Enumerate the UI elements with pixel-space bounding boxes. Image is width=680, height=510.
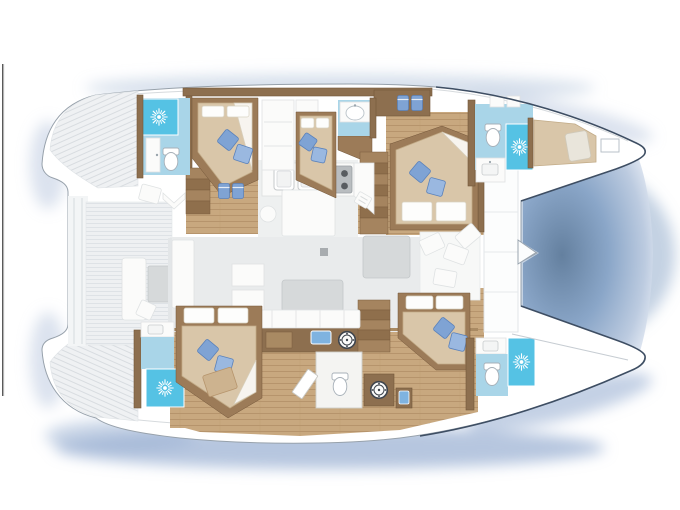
wall — [370, 98, 376, 138]
salon-cabinet-1 — [232, 264, 264, 286]
catamaran-floor-plan: Catamaran yacht interior floor plan, top… — [0, 0, 680, 510]
washing-machine-icon — [339, 332, 356, 349]
anchor-locker — [601, 139, 619, 152]
washing-machine-icon — [371, 382, 388, 399]
blue-towel-icon — [219, 184, 230, 199]
floor-plan-canvas: Catamaran yacht interior floor plan, top… — [0, 0, 680, 510]
bed-pillow — [301, 118, 314, 128]
left-edge-artifact — [2, 64, 4, 396]
closet-top — [262, 100, 294, 170]
bed-pillow — [316, 118, 329, 128]
head-top-aft — [137, 95, 190, 178]
dinette-table — [363, 236, 410, 278]
blue-towel-icon — [233, 184, 244, 199]
vanity — [476, 158, 505, 182]
blue-pillow-icon — [448, 332, 467, 351]
cockpit-salon-wall — [168, 238, 172, 334]
salon-side-bench — [172, 240, 194, 308]
toilet-icon — [332, 373, 348, 396]
galley-stool — [260, 206, 276, 222]
blue-towel-icon — [398, 96, 409, 111]
toilet-icon — [485, 124, 501, 147]
blue-pillow-icon — [311, 147, 328, 164]
washing-area — [364, 374, 394, 406]
head-wall — [137, 95, 143, 178]
salon-table — [282, 280, 343, 312]
aft-platform — [68, 196, 88, 346]
vanity — [141, 322, 174, 337]
vanity-top-mid — [338, 98, 376, 138]
wall — [468, 100, 475, 186]
bed-pillow — [436, 296, 463, 309]
bed-pillow — [184, 308, 214, 323]
bed-pillow — [436, 202, 466, 221]
bed-pillow — [406, 296, 433, 309]
mast-post — [320, 248, 328, 256]
blue-towel-icon — [412, 96, 423, 111]
bed-pillow — [202, 106, 224, 117]
bed-pillow — [218, 308, 248, 323]
wall — [466, 338, 474, 410]
wall — [134, 330, 141, 408]
toilet-icon — [163, 148, 179, 171]
vanity — [476, 338, 506, 354]
bed-pillow — [402, 202, 432, 221]
galley-sink-1 — [274, 168, 294, 190]
bulkhead — [528, 118, 533, 168]
sink-icon — [346, 106, 364, 120]
berth-pillow — [565, 130, 592, 161]
galley-sink-blue — [311, 331, 331, 344]
stairs-bottom-companionway — [358, 300, 390, 352]
forward-crossdeck-band — [484, 168, 518, 332]
cabin-right-upper-bed — [390, 126, 478, 230]
skylight — [296, 100, 318, 112]
toilet-icon — [484, 363, 500, 386]
bed-pillow — [227, 106, 249, 117]
cabinet-blue-front — [396, 388, 412, 408]
galley-island — [282, 190, 335, 236]
